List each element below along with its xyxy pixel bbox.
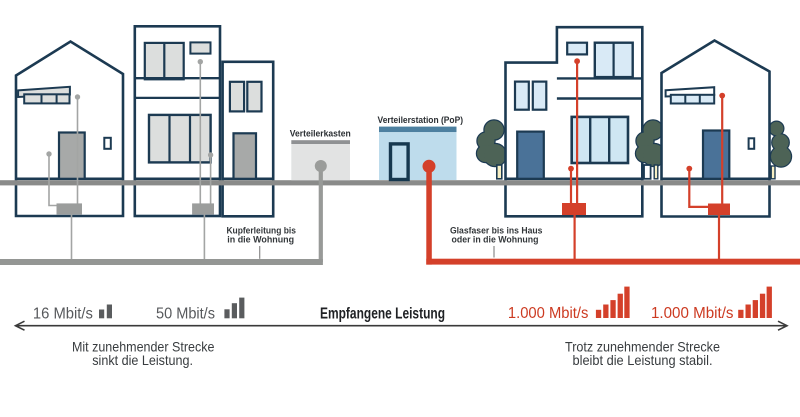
svg-text:1.000 Mbit/s: 1.000 Mbit/s <box>508 305 589 322</box>
svg-text:bleibt die Leistung stabil.: bleibt die Leistung stabil. <box>573 352 713 368</box>
svg-text:Verteilerkasten: Verteilerkasten <box>290 129 351 139</box>
svg-text:in die Wohnung: in die Wohnung <box>227 235 294 245</box>
svg-text:50 Mbit/s: 50 Mbit/s <box>156 305 215 322</box>
svg-text:oder in die Wohnung: oder in die Wohnung <box>452 235 539 245</box>
svg-text:16 Mbit/s: 16 Mbit/s <box>33 305 93 322</box>
svg-text:sinkt die Leistung.: sinkt die Leistung. <box>92 352 193 368</box>
svg-text:Verteilerstation (PoP): Verteilerstation (PoP) <box>378 115 464 125</box>
svg-text:Empfangene Leistung: Empfangene Leistung <box>320 305 445 322</box>
svg-text:1.000 Mbit/s: 1.000 Mbit/s <box>651 305 734 322</box>
